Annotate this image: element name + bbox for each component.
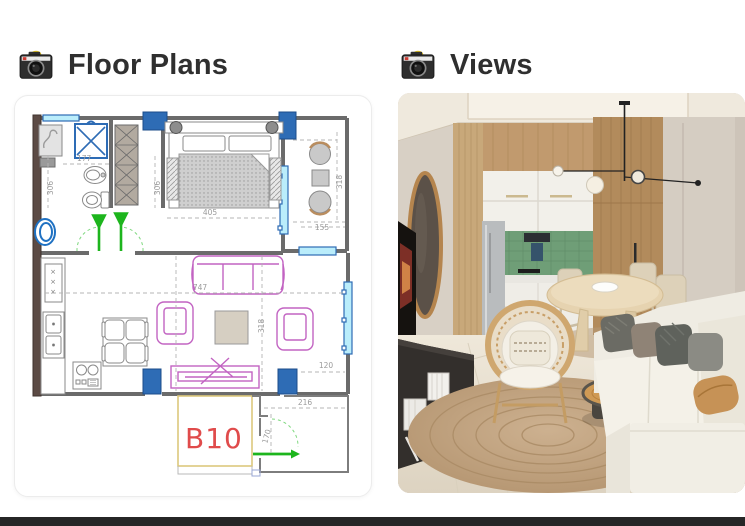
svg-text:318: 318 xyxy=(335,175,344,190)
unit-label: B10 xyxy=(185,422,243,455)
bowl xyxy=(592,282,618,292)
dining-chair xyxy=(126,343,148,363)
coffee-table xyxy=(215,311,248,344)
stove xyxy=(73,362,101,389)
svg-text:216: 216 xyxy=(298,398,313,407)
bath-mat xyxy=(40,158,55,167)
bottom-window-bar xyxy=(0,517,745,526)
cooktop xyxy=(518,269,540,273)
svg-text:170: 170 xyxy=(260,428,272,444)
white-sofa xyxy=(594,291,745,493)
camera-icon xyxy=(18,48,54,82)
floor-plan-drawing: × × × xyxy=(15,96,371,496)
svg-text:×: × xyxy=(50,278,56,286)
bedroom xyxy=(165,122,283,209)
svg-text:120: 120 xyxy=(319,361,334,370)
armchair xyxy=(277,308,313,350)
interior-render xyxy=(398,93,745,493)
svg-text:318: 318 xyxy=(257,319,266,334)
svg-text:×: × xyxy=(50,268,56,276)
tv-console xyxy=(171,358,259,388)
svg-text:306: 306 xyxy=(46,181,55,196)
bedside-rug xyxy=(167,158,178,200)
bearing-wall xyxy=(33,115,41,396)
page: Floor Plans Views xyxy=(0,0,745,526)
toilet xyxy=(83,192,110,208)
washing-machine xyxy=(75,122,107,159)
kitchen: × × × xyxy=(41,258,101,394)
wood-panel-wall xyxy=(453,123,483,345)
svg-text:747: 747 xyxy=(193,283,208,292)
floor-plans-header: Floor Plans xyxy=(18,48,228,82)
shower xyxy=(39,125,62,156)
cooker-hood-控 xyxy=(524,233,550,242)
svg-text:306: 306 xyxy=(153,181,162,196)
svg-text:405: 405 xyxy=(203,208,218,217)
dining-chair xyxy=(126,320,148,340)
dining-chair xyxy=(102,320,124,340)
svg-text:177: 177 xyxy=(77,154,92,163)
wardrobe xyxy=(115,125,138,205)
bedside-rug xyxy=(270,158,281,200)
camera-icon xyxy=(400,48,436,82)
floor-plan-image[interactable]: × × × xyxy=(14,95,372,497)
armchair xyxy=(157,302,193,344)
floor-plans-title: Floor Plans xyxy=(68,49,228,82)
patterned-pillow xyxy=(510,331,550,365)
sofa-ottoman xyxy=(630,423,745,493)
dining-set xyxy=(102,318,148,366)
sofa-armrest xyxy=(698,315,745,433)
balcony xyxy=(309,143,331,215)
kitchen-sink xyxy=(43,312,64,358)
bath-sink xyxy=(35,219,55,245)
svg-text:155: 155 xyxy=(315,223,330,232)
svg-text:×: × xyxy=(50,288,56,296)
views-header: Views xyxy=(400,48,533,82)
views-title: Views xyxy=(450,49,533,82)
bidet xyxy=(84,167,106,184)
dining-chair xyxy=(102,343,124,363)
view-render-image[interactable] xyxy=(398,93,745,493)
